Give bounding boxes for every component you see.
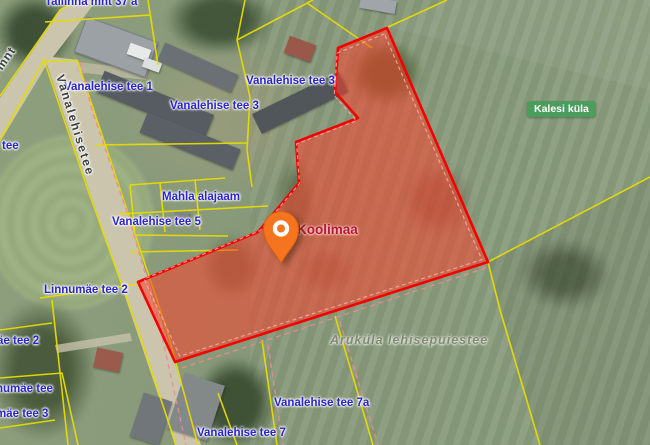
map-canvas[interactable]: Tallinna mnt 37 a Vanalehise tee 1 Vanal… (0, 0, 650, 445)
location-pin-icon[interactable] (0, 0, 650, 445)
